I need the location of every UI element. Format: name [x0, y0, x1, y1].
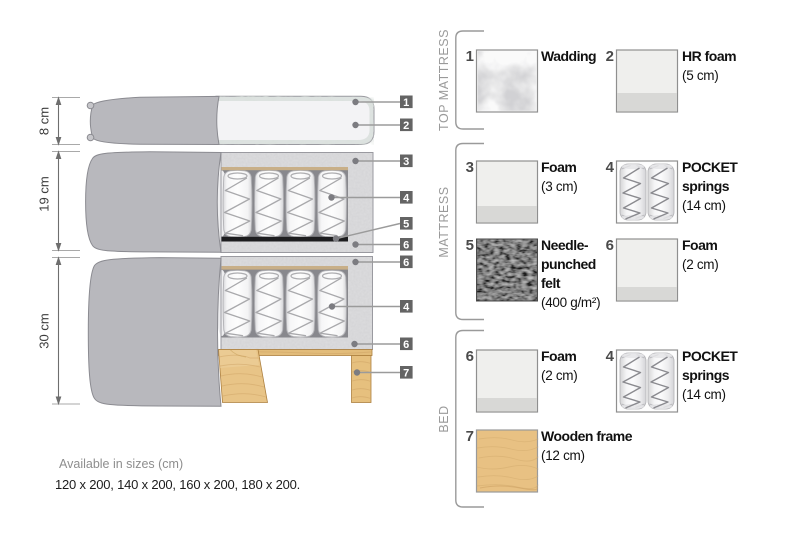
- svg-text:Wooden frame: Wooden frame: [541, 428, 633, 444]
- svg-text:(3 cm): (3 cm): [541, 179, 577, 194]
- svg-text:(400 g/m²): (400 g/m²): [541, 295, 600, 310]
- svg-text:6: 6: [466, 348, 474, 365]
- svg-text:(14 cm): (14 cm): [682, 387, 726, 402]
- svg-text:springs: springs: [682, 367, 730, 383]
- svg-text:5: 5: [403, 219, 409, 231]
- svg-text:4: 4: [606, 159, 615, 176]
- svg-text:(14 cm): (14 cm): [682, 198, 726, 213]
- svg-text:6: 6: [403, 339, 409, 351]
- svg-text:7: 7: [466, 428, 474, 445]
- svg-text:TOP MATTRESS: TOP MATTRESS: [437, 29, 451, 131]
- svg-text:MATTRESS: MATTRESS: [437, 186, 451, 257]
- svg-text:4: 4: [606, 348, 615, 365]
- svg-text:7: 7: [403, 368, 409, 380]
- svg-text:8 cm: 8 cm: [36, 107, 51, 135]
- svg-text:4: 4: [403, 193, 410, 205]
- svg-text:30 cm: 30 cm: [36, 313, 51, 348]
- svg-text:Foam: Foam: [682, 237, 717, 253]
- svg-text:3: 3: [466, 159, 474, 176]
- svg-text:Foam: Foam: [541, 159, 576, 175]
- svg-text:3: 3: [403, 156, 409, 168]
- svg-text:2: 2: [606, 48, 614, 65]
- svg-text:punched: punched: [541, 256, 596, 272]
- svg-text:felt: felt: [541, 275, 561, 291]
- svg-text:Needle-: Needle-: [541, 237, 589, 253]
- svg-text:Available in sizes (cm): Available in sizes (cm): [59, 457, 183, 471]
- svg-text:6: 6: [403, 240, 409, 252]
- svg-text:BED: BED: [437, 405, 451, 432]
- svg-text:Wadding: Wadding: [541, 48, 596, 64]
- svg-text:1: 1: [403, 97, 409, 109]
- svg-text:5: 5: [466, 237, 474, 254]
- svg-text:6: 6: [403, 257, 409, 269]
- svg-text:Foam: Foam: [541, 348, 576, 364]
- svg-text:120 x 200, 140 x 200, 160 x 20: 120 x 200, 140 x 200, 160 x 200, 180 x 2…: [55, 477, 300, 492]
- svg-text:springs: springs: [682, 178, 730, 194]
- svg-text:(5 cm): (5 cm): [682, 68, 718, 83]
- svg-text:POCKET: POCKET: [682, 159, 738, 175]
- svg-text:(2 cm): (2 cm): [541, 368, 577, 383]
- svg-text:1: 1: [466, 48, 474, 65]
- svg-text:2: 2: [403, 120, 409, 132]
- svg-text:(12 cm): (12 cm): [541, 448, 585, 463]
- svg-text:19 cm: 19 cm: [36, 176, 51, 211]
- svg-text:HR foam: HR foam: [682, 48, 736, 64]
- svg-text:4: 4: [403, 302, 410, 314]
- svg-text:(2 cm): (2 cm): [682, 257, 718, 272]
- svg-text:POCKET: POCKET: [682, 348, 738, 364]
- svg-text:6: 6: [606, 237, 614, 254]
